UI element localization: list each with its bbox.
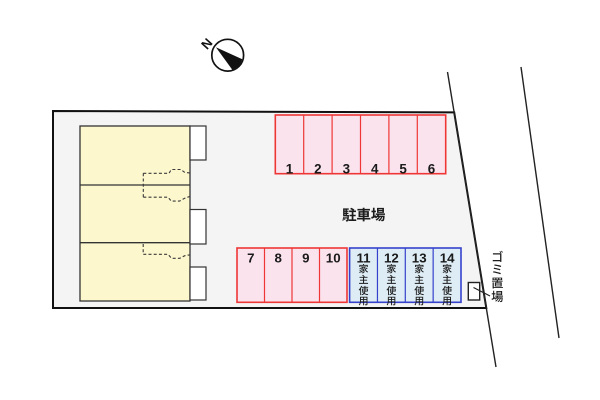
svg-text:4: 4 (371, 161, 379, 176)
svg-text:13: 13 (412, 251, 427, 266)
svg-text:2: 2 (314, 161, 321, 176)
svg-text:11: 11 (356, 251, 371, 266)
svg-text:12: 12 (384, 251, 399, 266)
svg-text:14: 14 (440, 251, 455, 266)
svg-text:7: 7 (247, 251, 254, 266)
svg-text:5: 5 (399, 161, 407, 176)
svg-text:3: 3 (343, 161, 350, 176)
svg-text:1: 1 (286, 161, 294, 176)
svg-text:8: 8 (274, 251, 281, 266)
svg-text:10: 10 (326, 251, 341, 266)
svg-text:9: 9 (302, 251, 309, 266)
svg-text:6: 6 (428, 161, 435, 176)
